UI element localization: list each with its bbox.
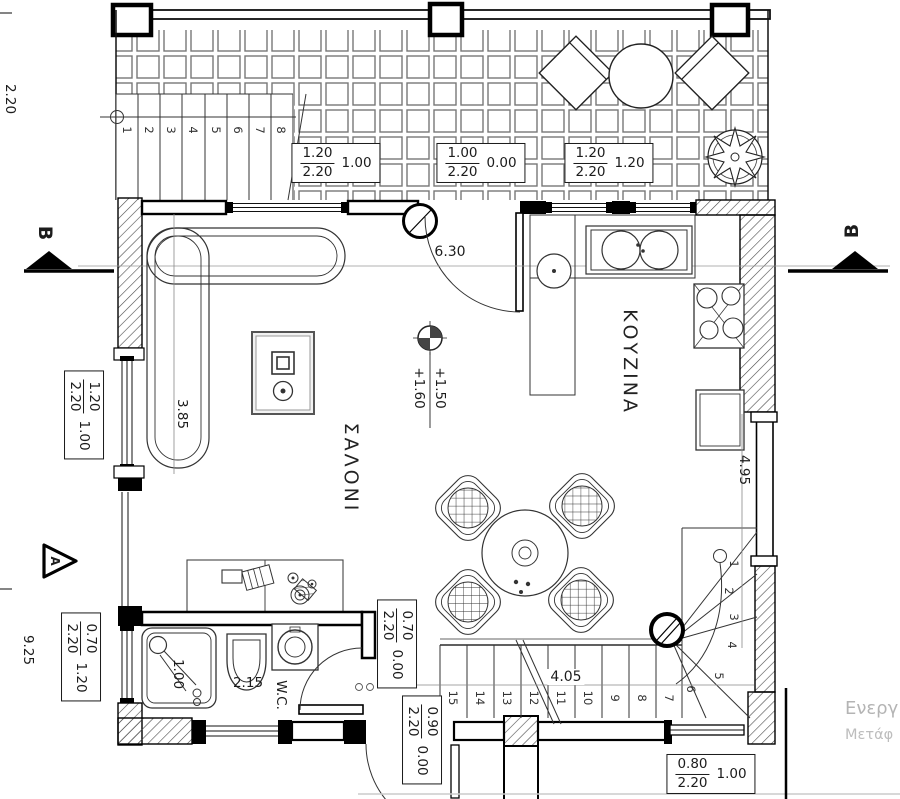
stair-number: 1	[727, 560, 741, 567]
section-label-b-left: B	[34, 226, 56, 240]
stair-number: 2	[722, 587, 736, 594]
dining-table	[482, 510, 568, 596]
opening-width: 1.00	[445, 146, 479, 164]
opening-height: 2.20	[67, 381, 84, 411]
floor-plan-linework	[0, 0, 900, 799]
stair-number: 6	[231, 126, 245, 133]
sill-level: 1.00	[76, 421, 92, 451]
opening-height: 2.20	[677, 775, 707, 792]
opening-height: 2.20	[302, 164, 332, 181]
opening-width: 0.90	[422, 704, 440, 738]
level-lower: +1.60	[411, 367, 427, 408]
sill-level: 1.00	[342, 155, 372, 171]
schedule-entry-door: 0.902.20 0.00	[402, 695, 442, 784]
stair-number: 1	[120, 126, 134, 133]
stair-number: 4	[186, 126, 200, 133]
section-label-a: A	[48, 556, 62, 565]
stair-number: 4	[725, 641, 739, 648]
opening-width: 0.70	[397, 608, 415, 642]
opening-height: 2.20	[64, 623, 81, 653]
stair-number: 11	[554, 691, 568, 706]
schedule-terrace-window-1: 1.202.20 1.00	[291, 143, 380, 183]
railing-post	[430, 4, 462, 35]
opening-height: 2.20	[380, 610, 397, 640]
watermark-line2: Μετάφ	[845, 727, 900, 743]
tv-unit	[252, 332, 314, 414]
sill-level: 1.00	[717, 766, 747, 782]
stair-number: 5	[209, 126, 223, 133]
living-room	[147, 214, 447, 474]
terrace	[100, 4, 770, 200]
dim-stair-run: 4.05	[547, 669, 584, 685]
opening-height: 2.20	[447, 164, 477, 181]
room-label-wc: W.C.	[273, 680, 289, 710]
sill-level: 0.00	[389, 650, 405, 680]
dining	[430, 468, 620, 640]
sill-level: 1.20	[615, 155, 645, 171]
dim-living: 3.85	[174, 399, 190, 429]
watermark-line1: Ενεργ	[845, 698, 900, 719]
stair-number: 10	[581, 691, 595, 706]
dim-left-height: 9.25	[20, 635, 36, 665]
stair-column	[651, 614, 683, 646]
stair-number: 2	[142, 126, 156, 133]
stair-number: 12	[527, 691, 541, 706]
sill-level: 0.00	[487, 155, 517, 171]
stair-number: 15	[446, 691, 460, 706]
sill-level: 0.00	[414, 746, 430, 776]
railing-post	[113, 5, 151, 35]
stair-number: 5	[712, 672, 726, 679]
schedule-left-window: 1.202.20 1.00	[64, 370, 104, 459]
floor-plan: ΣΑΛΟΝΙ ΚΟΥΖΙΝΑ W.C. +1.50 +1.60 2.20 9.2…	[0, 0, 900, 799]
dim-kitchen-wall: 4.95	[736, 455, 752, 485]
dim-terrace-height: 2.20	[2, 84, 18, 114]
fridge	[696, 390, 744, 450]
stove	[694, 284, 744, 348]
opening-height: 2.20	[575, 164, 605, 181]
stair-number: 13	[500, 691, 514, 706]
room-label-kitchen: ΚΟΥΖΙΝΑ	[619, 309, 641, 415]
stair-number: 9	[608, 694, 622, 701]
stair-number: 7	[253, 126, 267, 133]
opening-width: 0.70	[81, 621, 99, 655]
dim-wc: 2.15	[233, 675, 263, 691]
opening-height: 2.20	[405, 706, 422, 736]
counter	[530, 215, 575, 395]
room-label-living: ΣΑΛΟΝΙ	[340, 423, 362, 514]
stair-number: 3	[164, 126, 178, 133]
terrace-table	[609, 44, 673, 108]
opening-width: 1.20	[300, 146, 334, 164]
opening-width: 1.20	[84, 379, 102, 413]
schedule-terrace-door: 1.002.20 0.00	[436, 143, 525, 183]
washing-machine	[272, 624, 318, 670]
sill-level: 1.20	[73, 663, 89, 693]
stair-number: 6	[684, 685, 698, 692]
walls	[114, 198, 900, 799]
dim-shower: 1.00	[170, 659, 186, 689]
plant	[706, 128, 764, 186]
stair-number: 8	[274, 126, 288, 133]
desk-area	[187, 560, 343, 612]
railing-post	[712, 5, 748, 35]
opening-width: 0.80	[675, 757, 709, 775]
schedule-bottom-window: 0.802.20 1.00	[666, 754, 755, 794]
schedule-wc-door: 0.702.20 0.00	[377, 599, 417, 688]
schedule-terrace-window-2: 1.202.20 1.20	[564, 143, 653, 183]
dim-entry: 6.30	[434, 244, 465, 260]
stair-number: 3	[727, 613, 741, 620]
level-upper: +1.50	[432, 367, 448, 408]
stair-number: 14	[473, 691, 487, 706]
schedule-wc-window: 0.702.20 1.20	[61, 612, 101, 701]
watermark: Ενεργ Μετάφ	[845, 698, 900, 770]
terrace-stairs	[100, 94, 306, 200]
stair-number: 8	[635, 694, 649, 701]
stair-number: 7	[662, 694, 676, 701]
section-label-b-right: B	[841, 224, 863, 238]
opening-width: 1.20	[573, 146, 607, 164]
